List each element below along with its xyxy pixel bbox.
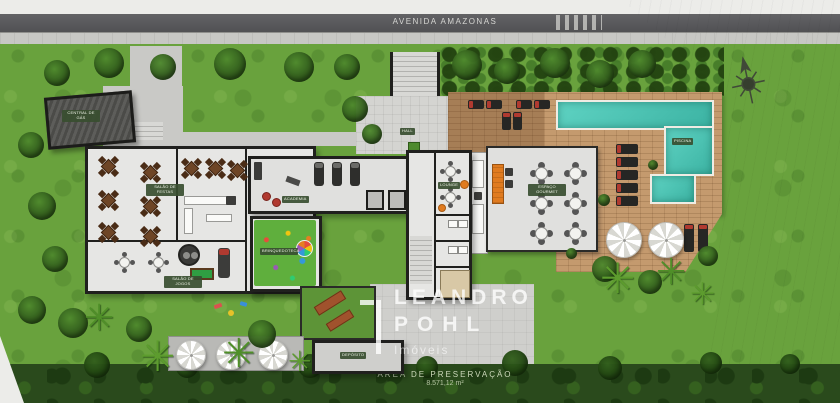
restroom-fixture <box>458 246 468 254</box>
shrub <box>598 194 610 206</box>
round-table <box>535 227 548 240</box>
site-plan: AVENIDA AMAZONAS <box>0 0 840 403</box>
stairwell <box>410 236 432 284</box>
shrub <box>566 248 577 259</box>
tree <box>494 58 520 84</box>
sun-lounger <box>468 100 484 109</box>
tree <box>28 192 56 220</box>
umbrella <box>606 222 642 258</box>
room-label-lounge: LOUNGE <box>438 182 460 189</box>
lounge-table <box>445 166 456 177</box>
logo-line-2: POHL <box>394 313 533 337</box>
palm-tree <box>600 258 635 300</box>
kitchen-counter <box>184 208 193 234</box>
poker-table <box>178 244 200 266</box>
sun-lounger <box>486 100 502 109</box>
logo-text: LEANDRO POHL Imóveis <box>394 286 533 370</box>
palm-tree <box>288 348 311 376</box>
room-label-service: CENTRAL DE GÁS <box>62 110 100 122</box>
weight-rack <box>254 162 262 180</box>
treadmill <box>350 162 360 186</box>
interior-wall <box>436 214 470 216</box>
elevator <box>366 190 384 210</box>
stair-wall <box>437 52 440 98</box>
round-table <box>569 197 582 210</box>
tree <box>214 48 246 80</box>
bar-counter <box>492 164 504 204</box>
kitchen-appliance <box>474 192 482 200</box>
round-table <box>569 227 582 240</box>
umbrella <box>176 340 206 370</box>
palm-tree <box>222 334 256 374</box>
room-label-gym: ACADEMIA <box>282 196 309 203</box>
orange-pouf <box>438 204 446 212</box>
sun-lounger <box>616 144 638 154</box>
tree <box>342 96 368 122</box>
tree <box>452 50 482 80</box>
room-label-hall: HALL <box>400 128 415 135</box>
treadmill <box>314 162 324 186</box>
kitchen-counter <box>472 160 484 188</box>
logo-mark-icon <box>360 286 386 366</box>
orange-pouf <box>460 180 469 189</box>
logo-line-1: LEANDRO <box>394 286 533 310</box>
interior-wall <box>436 240 470 242</box>
sun-lounger <box>616 170 638 180</box>
dumbbell <box>272 198 281 207</box>
hedge-row <box>438 46 724 96</box>
kitchen-counter <box>472 204 484 234</box>
tree <box>334 54 360 80</box>
tree <box>698 246 718 266</box>
tree <box>540 48 570 78</box>
room-label-playroom: BRINQUEDOTECA <box>260 248 298 255</box>
logo: LEANDRO POHL Imóveis <box>360 286 540 370</box>
tree <box>780 354 800 374</box>
round-table <box>535 197 548 210</box>
sun-lounger <box>616 157 638 167</box>
treadmill <box>332 162 342 186</box>
round-table <box>569 167 582 180</box>
lounge-table <box>445 192 456 203</box>
tree <box>362 124 382 144</box>
games-table <box>153 257 164 268</box>
sun-lounger <box>534 100 550 109</box>
tree <box>628 50 656 78</box>
restroom-fixture <box>448 220 458 228</box>
tree <box>18 132 44 158</box>
kitchen-appliance <box>226 196 236 205</box>
restroom-fixture <box>458 220 468 228</box>
kids-pool <box>650 174 696 204</box>
sun-lounger <box>516 100 532 109</box>
bar-appliance <box>505 168 513 176</box>
tree <box>42 246 68 272</box>
room-label-gourmet: ESPAÇO GOURMET <box>528 184 566 196</box>
sun-lounger <box>513 112 522 130</box>
room-label-party-hall: SALÃO DE FESTAS <box>146 184 184 196</box>
tree <box>84 352 110 378</box>
palm-tree <box>140 336 175 378</box>
elevator <box>388 190 406 210</box>
tree <box>44 60 70 86</box>
room-label-games: SALÃO DE JOGOS <box>164 276 202 288</box>
room-label-pool: PISCINA <box>672 138 693 145</box>
front-walkway <box>183 132 358 146</box>
tree <box>150 54 176 80</box>
shrub <box>648 160 658 170</box>
games-table <box>119 257 130 268</box>
logo-line-3: Imóveis <box>394 343 533 357</box>
sun-lounger <box>616 183 638 193</box>
tree <box>586 60 614 88</box>
palm-tree <box>656 254 686 290</box>
dumbbell <box>262 192 271 201</box>
sun-lounger <box>616 196 638 206</box>
tree <box>94 48 124 78</box>
swimming-pool-arm <box>664 126 714 176</box>
tree <box>700 352 722 374</box>
street-name-label: AVENIDA AMAZONAS <box>260 17 630 26</box>
palm-tree <box>690 280 715 310</box>
tree <box>18 296 46 324</box>
preservation-area-value: 8.571,12 m² <box>250 380 640 387</box>
bar-appliance <box>505 180 513 188</box>
interior-wall <box>88 240 245 242</box>
chaise-lounge <box>218 248 230 278</box>
sun-lounger <box>502 112 511 130</box>
round-table <box>535 167 548 180</box>
tree <box>284 52 314 82</box>
restroom-fixture <box>448 246 458 254</box>
entrance-stairs <box>393 52 437 98</box>
playground-toy <box>228 310 234 316</box>
interior-wall <box>434 152 436 296</box>
interior-wall <box>436 266 470 268</box>
kitchen-island <box>206 214 232 222</box>
sun-lounger <box>684 224 694 252</box>
palm-tree <box>84 300 114 336</box>
